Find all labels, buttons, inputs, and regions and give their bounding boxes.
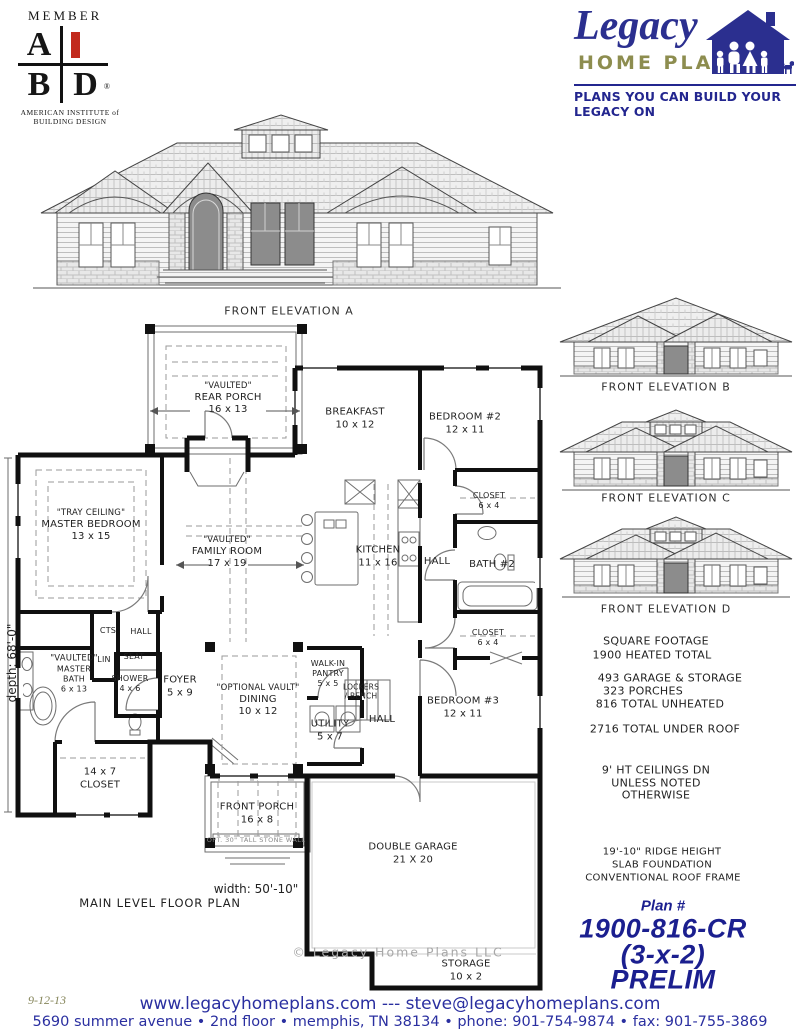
room-label-rear-porch: "VAULTED" REAR PORCH 16 x 13	[194, 381, 261, 417]
aibd-letter-i	[63, 26, 108, 66]
sqft-heated: 1900 HEATED TOTAL	[592, 649, 711, 662]
room-label-double-garage: DOUBLE GARAGE 21 X 20	[368, 842, 457, 867]
room-label-lockers: LOCKERS / BENCH	[343, 683, 379, 702]
address-line: 5690 summer avenue • 2nd floor • memphis…	[0, 1014, 800, 1030]
width-dimension-label: width: 50'-10"	[214, 882, 299, 896]
brand-block: Legacy HOME PLANS	[574, 8, 796, 119]
room-label-kitchen: KITCHEN 11 x 16	[356, 545, 401, 570]
room-label-utility: UTILITY 5 x 7	[311, 719, 350, 744]
room-label-linen: LIN	[97, 655, 110, 665]
elevation-d-label: FRONT ELEVATION D	[601, 603, 731, 616]
room-label-master-bedroom: "TRAY CEILING" MASTER BEDROOM 13 x 15	[41, 508, 140, 544]
plan-copyright: © Legacy Home Plans LLC	[292, 945, 503, 960]
room-label-master-closet: 14 x 7 CLOSET	[80, 767, 120, 792]
plan-status: PRELIM	[610, 965, 715, 996]
elevation-d-drawing	[558, 506, 794, 602]
elevation-a-drawing	[27, 63, 567, 293]
room-label-storage: STORAGE 10 x 2	[441, 959, 490, 984]
room-label-master-bath: "VAULTED" MASTER BATH 6 x 13	[50, 654, 98, 695]
room-label-bath-2: BATH #2	[469, 559, 515, 572]
plan-sheet: MEMBER A B D ® AMERICAN INSTITUTE of BUI…	[0, 0, 800, 1036]
depth-dimension-label: depth: 68'-0"	[5, 624, 19, 703]
member-label: MEMBER	[28, 8, 128, 24]
stem-wall-note: OPT. 30" TALL STONE WALL	[207, 836, 306, 844]
room-label-foyer: FOYER 5 x 9	[163, 675, 196, 700]
room-label-hall-upper: HALL	[424, 556, 450, 569]
brand-tagline: PLANS YOU CAN BUILD YOUR LEGACY ON	[574, 84, 796, 119]
floor-plan-title: MAIN LEVEL FLOOR PLAN	[79, 896, 241, 910]
elevation-b-drawing	[556, 292, 796, 380]
brand-script-name: Legacy	[574, 2, 698, 50]
room-label-pantry: WALK-IN PANTRY 5 x 5	[311, 659, 345, 689]
room-label-cts: CTS	[100, 626, 116, 636]
elevation-b-label: FRONT ELEVATION B	[601, 381, 731, 394]
ridge-height-note: 19'-10" RIDGE HEIGHT	[603, 847, 722, 858]
room-label-closet-bed2: CLOSET 6 x 4	[473, 491, 505, 511]
elevation-c-drawing	[558, 400, 794, 494]
room-label-bedroom-3: BEDROOM #3 12 x 11	[427, 696, 499, 721]
room-label-seat: SEAT	[124, 652, 145, 662]
room-label-breakfast: BREAKFAST 10 x 12	[325, 407, 384, 432]
sqft-garage-storage: 493 GARAGE & STORAGE	[598, 672, 742, 685]
elevation-c-label: FRONT ELEVATION C	[601, 492, 731, 505]
aibd-red-i-icon	[71, 32, 80, 58]
sqft-title: SQUARE FOOTAGE	[603, 635, 709, 648]
website-email-link[interactable]: www.legacyhomeplans.com --- steve@legacy…	[90, 994, 710, 1014]
foundation-note: SLAB FOUNDATION	[612, 860, 712, 871]
room-label-front-porch: FRONT PORCH 16 x 8	[220, 802, 294, 827]
aibd-letter-a: A	[18, 26, 63, 66]
ceiling-note-line1: 9' HT CEILINGS DN	[602, 764, 710, 777]
date-note: 9-12-13	[28, 993, 66, 1008]
room-label-closet-bed3: CLOSET 6 x 4	[472, 628, 504, 648]
room-label-hall-rear: HALL	[369, 714, 395, 727]
roof-frame-note: CONVENTIONAL ROOF FRAME	[585, 873, 741, 884]
sqft-porches: 323 PORCHES	[603, 685, 683, 698]
room-label-hall-master: HALL	[130, 627, 151, 637]
elevation-a-label: FRONT ELEVATION A	[224, 305, 353, 318]
sqft-unheated: 816 TOTAL UNHEATED	[596, 698, 725, 711]
house-family-icon	[702, 8, 794, 76]
room-label-family-room: "VAULTED" FAMILY ROOM 17 x 19	[192, 535, 262, 571]
sqft-under-roof: 2716 TOTAL UNDER ROOF	[590, 723, 740, 736]
ceiling-note-line3: OTHERWISE	[622, 789, 691, 802]
room-label-dining: "OPTIONAL VAULT" DINING 10 x 12	[217, 683, 300, 719]
room-label-shower: SHOWER 4 x 6	[111, 674, 148, 694]
plan-number-label: Plan #	[641, 898, 685, 915]
room-label-bedroom-2: BEDROOM #2 12 x 11	[429, 412, 501, 437]
